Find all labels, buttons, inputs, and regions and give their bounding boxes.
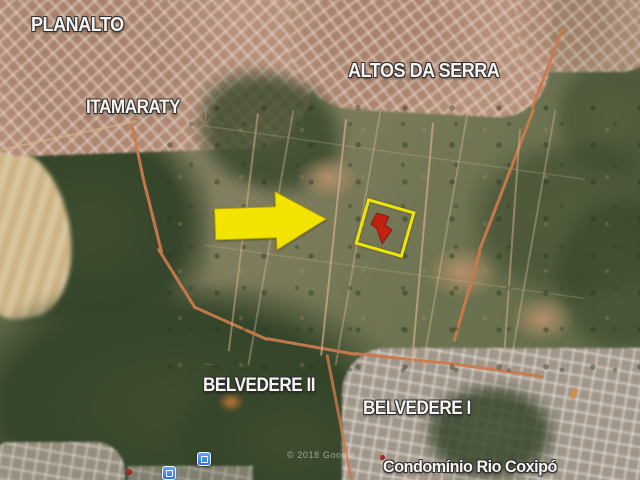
- transit-poi-icon[interactable]: [162, 466, 176, 480]
- poi-dot: [126, 469, 132, 475]
- place-label-belvedere-ii: BELVEDERE II: [203, 375, 315, 397]
- google-copyright: © 2018 Google: [287, 450, 355, 460]
- urban-strip: [128, 466, 253, 480]
- place-label-altos-da-serra: ALTOS DA SERRA: [348, 60, 499, 83]
- transit-poi-icon[interactable]: [197, 452, 211, 466]
- place-label-condominio-rio-coxipo: Condomínio Rio Coxipó: [383, 457, 557, 477]
- place-label-belvedere-i: BELVEDERE I: [363, 398, 471, 420]
- urban-area-bottomleft: [0, 442, 125, 480]
- place-label-itamaraty: ITAMARATY: [86, 97, 180, 119]
- urban-area-topright: [518, 0, 640, 72]
- place-label-planalto: PLANALTO: [31, 14, 124, 37]
- map-canvas[interactable]: PLANALTO ITAMARATY ALTOS DA SERRA BELVED…: [0, 0, 640, 480]
